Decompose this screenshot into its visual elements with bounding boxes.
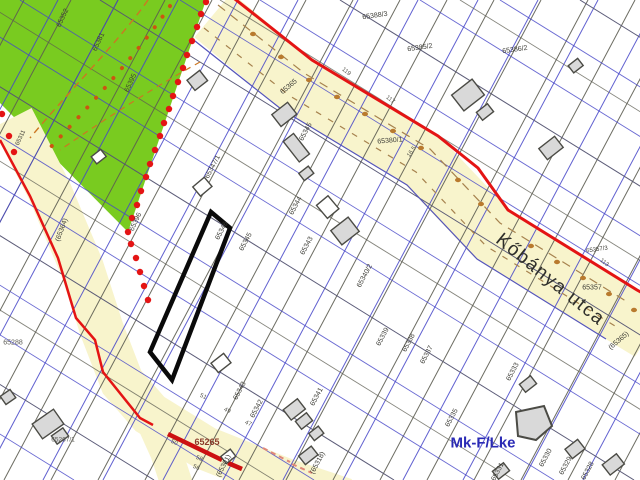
cadastral-map: Kőbánya utca Mk-F/Lke 653526538165395653… bbox=[0, 0, 640, 480]
map-canvas bbox=[0, 0, 640, 480]
